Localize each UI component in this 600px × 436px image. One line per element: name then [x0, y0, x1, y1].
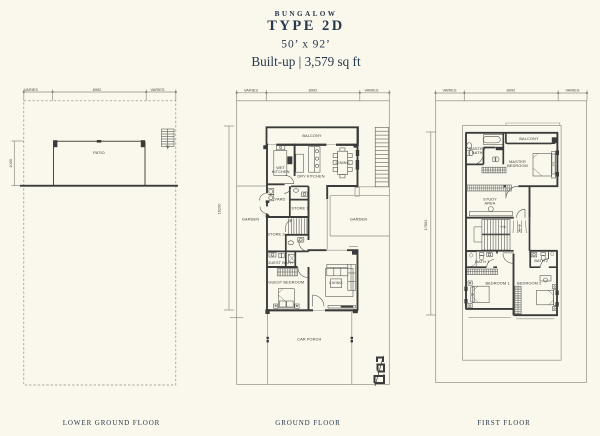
svg-text:BATH: BATH [472, 150, 483, 155]
svg-text:KITCHEN: KITCHEN [272, 169, 290, 174]
svg-text:CAR PORCH: CAR PORCH [297, 337, 321, 342]
svg-text:8992: 8992 [93, 87, 102, 92]
svg-text:VARIES: VARIES [443, 88, 457, 93]
svg-text:GARDEN: GARDEN [242, 217, 259, 222]
svg-text:GUEST BEDROOM: GUEST BEDROOM [268, 280, 304, 285]
svg-text:8992: 8992 [309, 87, 318, 92]
svg-text:17862: 17862 [423, 220, 428, 231]
svg-text:YARD: YARD [275, 197, 286, 202]
svg-text:LIVING: LIVING [329, 280, 342, 285]
svg-text:AREA: AREA [485, 201, 496, 206]
svg-text:STORE 2: STORE 2 [267, 232, 284, 237]
svg-text:VARIES: VARIES [151, 87, 165, 92]
svg-text:Built-up | 3,579 sq ft: Built-up | 3,579 sq ft [251, 54, 361, 69]
svg-text:DINING: DINING [335, 160, 349, 165]
svg-text:BALCONY: BALCONY [519, 136, 539, 141]
svg-text:STORE 1: STORE 1 [291, 206, 308, 211]
svg-text:VARIES: VARIES [244, 87, 258, 92]
svg-text:PATIO: PATIO [93, 150, 105, 155]
svg-text:BEDROOM: BEDROOM [507, 163, 528, 168]
svg-text:8992: 8992 [507, 88, 516, 93]
svg-text:FIRST FLOOR: FIRST FLOOR [477, 419, 531, 427]
svg-text:BEDROOM 2: BEDROOM 2 [517, 280, 541, 285]
svg-text:VARIES: VARIES [24, 87, 38, 92]
svg-text:BUNGALOW: BUNGALOW [275, 10, 338, 18]
svg-text:50’ x 92’: 50’ x 92’ [281, 39, 330, 51]
svg-text:BATH 1: BATH 1 [475, 259, 489, 264]
svg-text:LOWER GROUND FLOOR: LOWER GROUND FLOOR [63, 419, 160, 427]
svg-text:VARIES: VARIES [365, 87, 379, 92]
svg-text:4000: 4000 [8, 158, 13, 167]
svg-text:GROUND FLOOR: GROUND FLOOR [275, 419, 340, 427]
svg-text:16200: 16200 [217, 203, 222, 215]
svg-text:DRY KITCHEN: DRY KITCHEN [297, 174, 324, 179]
svg-text:BEDROOM 1: BEDROOM 1 [485, 280, 509, 285]
svg-text:VARIES: VARIES [566, 88, 580, 93]
svg-text:TYPE 2D: TYPE 2D [267, 18, 345, 34]
svg-text:BALCONY: BALCONY [302, 133, 322, 138]
svg-text:GUEST BATH: GUEST BATH [267, 260, 293, 265]
svg-text:GARDEN: GARDEN [350, 217, 367, 222]
